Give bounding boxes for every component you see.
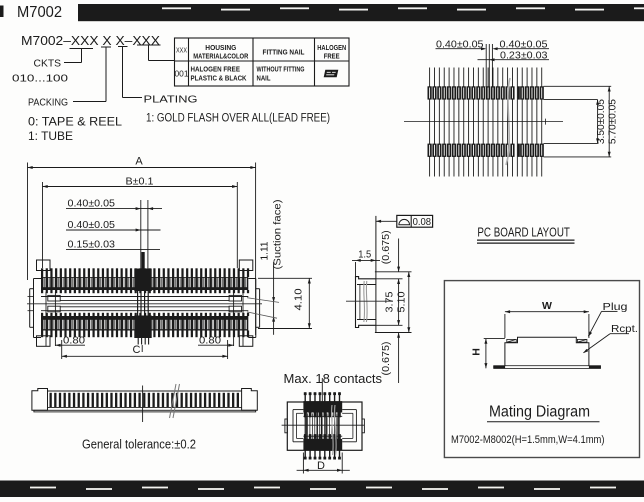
svg-text:W: W (542, 300, 552, 312)
svg-text:PACKING: PACKING (28, 97, 68, 109)
svg-text:5.10: 5.10 (395, 291, 407, 312)
svg-text:CKTS: CKTS (34, 58, 62, 70)
svg-text:PLASTIC & BLACK: PLASTIC & BLACK (191, 74, 247, 83)
svg-text:0.80: 0.80 (63, 335, 85, 347)
svg-text:FITTING NAIL: FITTING NAIL (263, 48, 305, 57)
svg-text:M7002–XXX X X–XXX: M7002–XXX X X–XXX (21, 33, 160, 48)
svg-text:1.11: 1.11 (258, 241, 270, 260)
svg-text:M7002-M8002(H=1.5mm,W=4.1mm): M7002-M8002(H=1.5mm,W=4.1mm) (451, 434, 605, 446)
svg-text:M7002: M7002 (17, 4, 62, 21)
svg-text:1: GOLD FLASH OVER ALL(LEAD FR: 1: GOLD FLASH OVER ALL(LEAD FREE) (146, 113, 330, 125)
svg-text:1: TUBE: 1: TUBE (28, 129, 73, 143)
svg-text:0.15±0.03: 0.15±0.03 (68, 239, 116, 251)
svg-text:4.10: 4.10 (293, 288, 305, 310)
svg-text:5.70±0.05: 5.70±0.05 (607, 99, 618, 144)
svg-text:0.40±0.05: 0.40±0.05 (68, 198, 116, 210)
svg-text:3.50±0.05: 3.50±0.05 (596, 99, 607, 144)
svg-text:C: C (133, 344, 141, 356)
svg-text:General tolerance:±0.2: General tolerance:±0.2 (82, 438, 196, 452)
svg-text:(0.675): (0.675) (380, 230, 392, 264)
svg-text:PC BOARD LAYOUT: PC BOARD LAYOUT (477, 225, 570, 240)
svg-text:0.80: 0.80 (199, 335, 221, 347)
svg-text:PLATING: PLATING (144, 94, 198, 106)
svg-text:1.5: 1.5 (358, 249, 371, 261)
svg-text:XXX: XXX (176, 48, 187, 55)
svg-text:HALOGEN FREE: HALOGEN FREE (191, 65, 241, 74)
svg-text:001: 001 (175, 69, 189, 79)
svg-text:H: H (470, 348, 482, 356)
svg-text:A: A (135, 156, 143, 168)
svg-text:NAIL: NAIL (257, 74, 271, 83)
svg-text:Mating Diagram: Mating Diagram (489, 404, 590, 421)
svg-text:D: D (317, 460, 325, 472)
svg-text:(0.675): (0.675) (380, 342, 392, 376)
svg-text:Rcpt.: Rcpt. (611, 323, 638, 335)
svg-text:3.75: 3.75 (384, 291, 396, 312)
svg-text:0: TAPE & REEL: 0: TAPE & REEL (28, 115, 122, 129)
svg-text:Max. 18 contacts: Max. 18 contacts (284, 372, 383, 386)
svg-text:(Suction face): (Suction face) (272, 200, 284, 270)
svg-text:MATERIAL&COLOR: MATERIAL&COLOR (193, 52, 248, 61)
svg-text:010...100: 010...100 (12, 73, 68, 85)
svg-text:B±0.1: B±0.1 (126, 176, 154, 188)
svg-text:0.40±0.05: 0.40±0.05 (68, 219, 116, 231)
svg-text:FREE: FREE (324, 52, 340, 61)
svg-text:WITHOUT FITTING: WITHOUT FITTING (257, 65, 305, 74)
svg-text:0.08: 0.08 (413, 216, 432, 228)
